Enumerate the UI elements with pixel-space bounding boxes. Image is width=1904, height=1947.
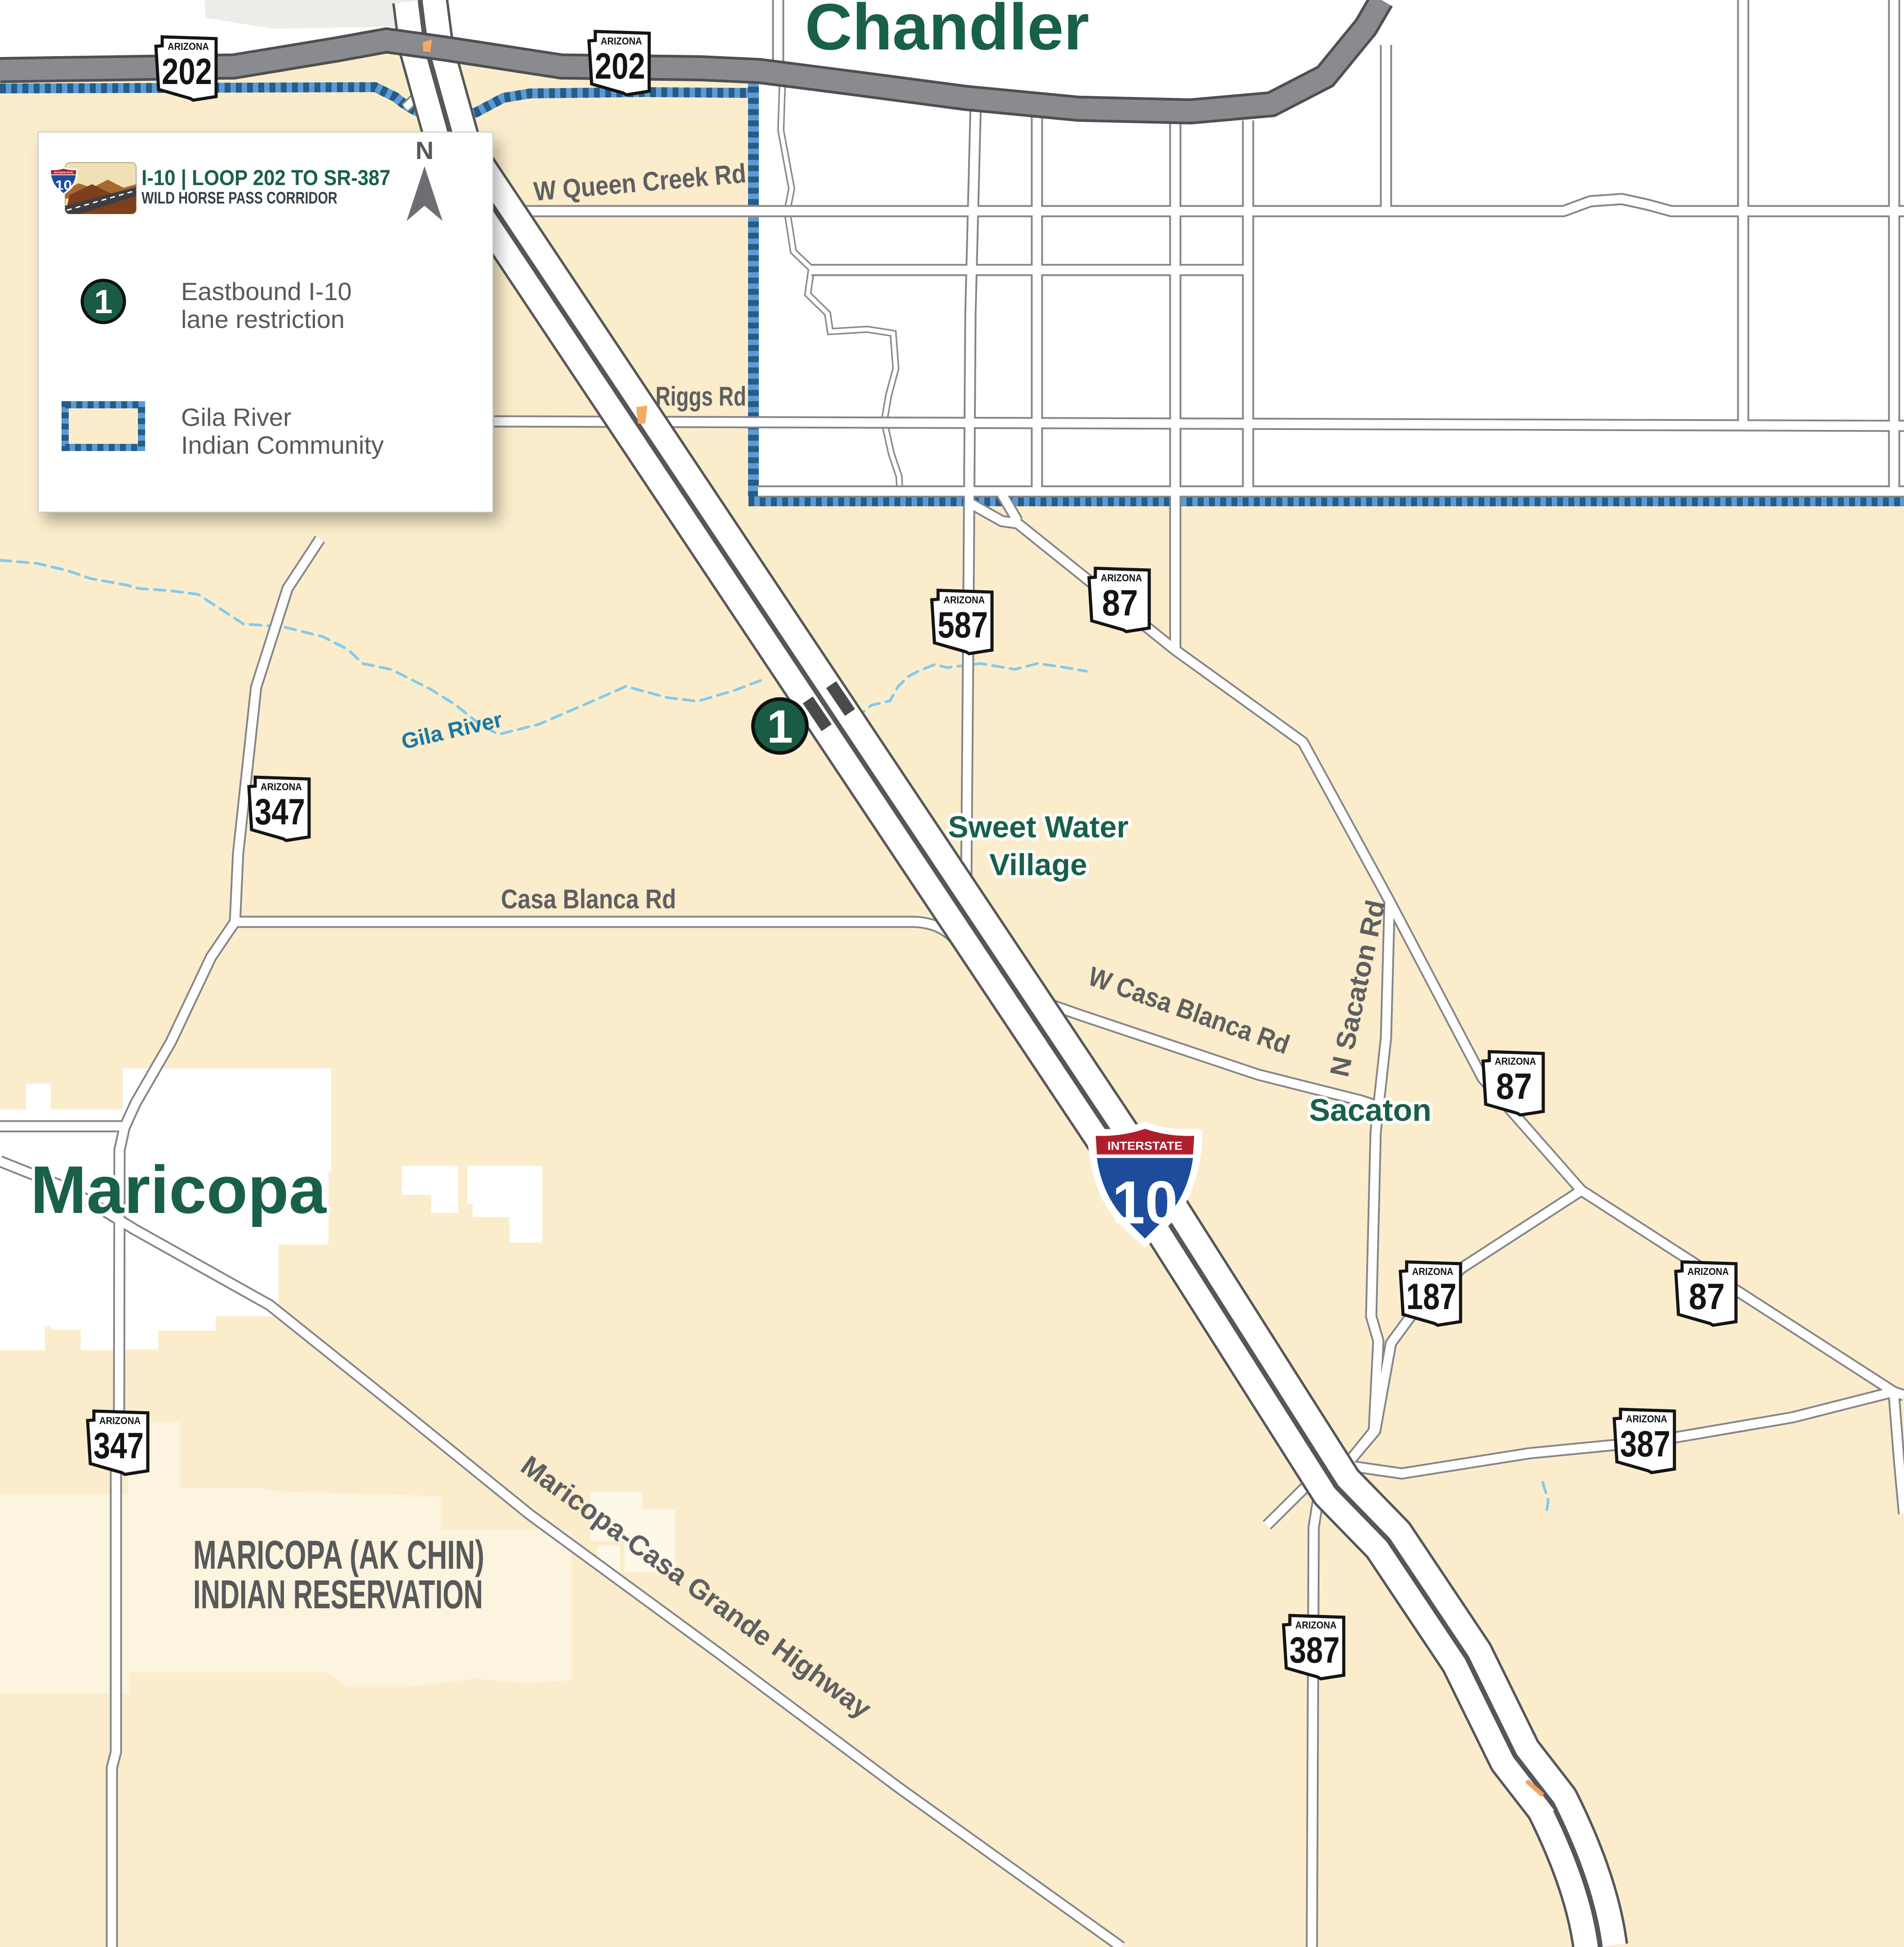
- svg-text:ARIZONA: ARIZONA: [261, 781, 302, 792]
- svg-text:I-10 | LOOP 202 TO SR-387: I-10 | LOOP 202 TO SR-387: [142, 166, 390, 190]
- svg-text:347: 347: [93, 1425, 144, 1466]
- svg-text:ARIZONA: ARIZONA: [943, 594, 985, 606]
- svg-text:202: 202: [595, 46, 645, 87]
- svg-text:87: 87: [1689, 1276, 1725, 1317]
- svg-text:INDIAN RESERVATION: INDIAN RESERVATION: [193, 1572, 483, 1617]
- svg-text:1: 1: [94, 283, 112, 320]
- svg-text:87: 87: [1496, 1066, 1532, 1107]
- svg-text:387: 387: [1620, 1424, 1670, 1465]
- svg-text:Chandler: Chandler: [805, 0, 1089, 63]
- svg-text:Sweet Water: Sweet Water: [948, 810, 1129, 844]
- svg-text:587: 587: [938, 605, 988, 646]
- svg-text:ARIZONA: ARIZONA: [1687, 1266, 1729, 1277]
- svg-text:ARIZONA: ARIZONA: [1295, 1620, 1337, 1631]
- svg-text:202: 202: [162, 51, 212, 92]
- svg-text:Indian Community: Indian Community: [181, 431, 384, 459]
- svg-text:lane restriction: lane restriction: [181, 305, 345, 333]
- svg-text:Eastbound I-10: Eastbound I-10: [181, 277, 352, 305]
- svg-text:1: 1: [767, 701, 793, 753]
- svg-text:347: 347: [255, 792, 305, 832]
- svg-text:ARIZONA: ARIZONA: [1495, 1056, 1536, 1067]
- svg-text:387: 387: [1289, 1630, 1340, 1671]
- svg-text:ARIZONA: ARIZONA: [99, 1415, 141, 1426]
- svg-text:Village: Village: [989, 848, 1087, 882]
- svg-text:ARIZONA: ARIZONA: [168, 41, 209, 52]
- svg-text:ARIZONA: ARIZONA: [1101, 572, 1142, 584]
- svg-text:Riggs Rd: Riggs Rd: [655, 381, 746, 412]
- svg-text:Maricopa: Maricopa: [31, 1152, 327, 1227]
- svg-text:Sacaton: Sacaton: [1309, 1093, 1431, 1128]
- svg-text:MARICOPA (AK CHIN): MARICOPA (AK CHIN): [193, 1533, 484, 1578]
- svg-text:N: N: [416, 136, 434, 164]
- svg-text:ARIZONA: ARIZONA: [601, 35, 642, 47]
- svg-text:87: 87: [1102, 583, 1138, 624]
- svg-text:187: 187: [1406, 1276, 1457, 1317]
- svg-text:Gila River: Gila River: [181, 403, 292, 431]
- svg-text:WILD HORSE PASS CORRIDOR: WILD HORSE PASS CORRIDOR: [142, 189, 337, 207]
- svg-text:Casa Blanca Rd: Casa Blanca Rd: [501, 884, 676, 914]
- svg-text:ARIZONA: ARIZONA: [1626, 1413, 1667, 1425]
- svg-text:ARIZONA: ARIZONA: [1412, 1266, 1453, 1277]
